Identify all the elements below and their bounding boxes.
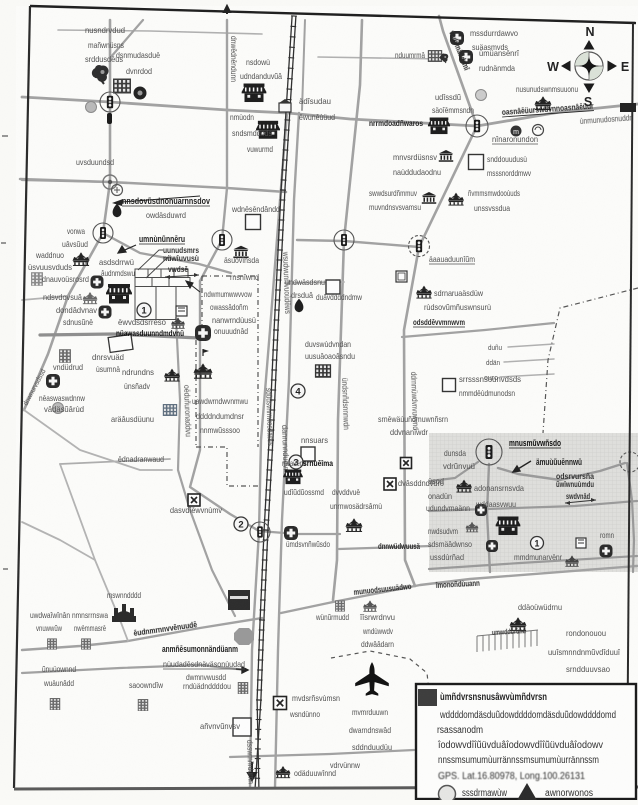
svg-text:awnorwonos: awnorwonos bbox=[545, 788, 593, 799]
svg-text:sssdrmawùw: sssdrmawùw bbox=[462, 788, 508, 799]
